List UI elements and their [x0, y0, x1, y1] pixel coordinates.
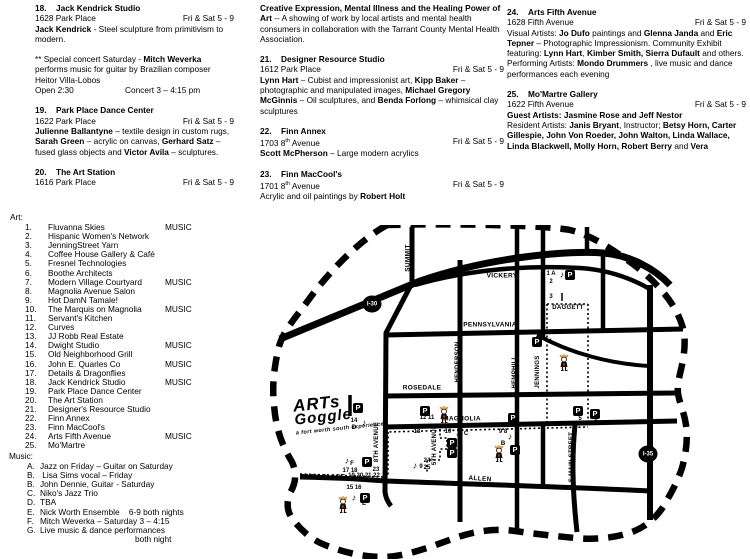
venue-address: 1703 8th Avenue — [260, 136, 320, 148]
street-label-vickery: VICKERY — [487, 273, 518, 280]
text-segment: Robert Holt — [360, 191, 405, 201]
street-label-summit: SUMMIT — [405, 244, 412, 271]
concert-times-row: Open 2:30Concert 3 – 4:15 pm — [35, 85, 234, 95]
venue-number: 20. — [35, 167, 56, 177]
venue-address: 1701 8th Avenue — [260, 179, 320, 191]
venue-marker: 7 — [514, 428, 517, 434]
parking-icon: P — [565, 270, 575, 280]
venue-marker: 19 20 21 22 — [348, 473, 380, 479]
parking-icon: P — [510, 445, 520, 455]
music-note-icon: ♪ — [352, 494, 357, 503]
paragraph: Creative Expression, Mental Illness and … — [260, 3, 504, 44]
text-segment: Gerhard Satz — [162, 136, 214, 146]
venue-marker: 2 — [549, 279, 552, 285]
venue-address: 1628 Fifth Avenue — [507, 17, 574, 27]
text-segment: Avenue — [290, 138, 320, 148]
music-item-letter: G. — [27, 526, 40, 535]
venue-marker: 15 16 — [346, 485, 361, 491]
spacer — [260, 159, 504, 169]
text-segment: Kipp Baker — [415, 75, 459, 85]
text-segment: 1628 Park Place — [35, 13, 96, 23]
parking-icon: P — [362, 457, 372, 467]
venue-hours: Fri & Sat 5 - 9 — [183, 177, 234, 187]
music-note-icon: ♪ — [456, 429, 461, 438]
venue-address-row: 1616 Park PlaceFri & Sat 5 - 9 — [35, 177, 234, 187]
venue-hours: Fri & Sat 5 - 9 — [695, 99, 746, 109]
parking-icon: P — [590, 409, 600, 419]
art-item-music-tag: MUSIC — [165, 278, 192, 287]
music-legend-items: A.Jazz on Friday – Guitar on SaturdayB. … — [9, 462, 265, 535]
spacer — [260, 116, 504, 126]
highway-shield-i-30: I-30 — [363, 296, 382, 313]
music-note-icon: ♪ — [560, 271, 565, 280]
listing-column-3: 24.Arts Fifth Avenue1628 Fifth AvenueFri… — [507, 7, 746, 151]
venue-name: Arts Fifth Avenue — [528, 7, 597, 17]
text-segment: Avenue — [290, 181, 320, 191]
venue-address-row: 1628 Park PlaceFri & Sat 5 - 9 — [35, 13, 234, 23]
parking-icon: P — [508, 413, 518, 423]
art-item-music-tag: MUSIC — [165, 378, 192, 387]
text-segment: Kimber Smith, Sierra Dufault — [587, 48, 700, 58]
venue-hours: Fri & Sat 5 - 9 — [183, 13, 234, 23]
venue-number: 23. — [260, 169, 281, 179]
text-segment: – Large modern acrylics — [328, 148, 419, 158]
parking-icon: P — [447, 448, 457, 458]
venue-hours: Fri & Sat 5 - 9 — [453, 179, 504, 191]
venue-description: Lynn Hart – Cubist and impressionist art… — [260, 75, 504, 116]
text-segment: Jo Dufo — [559, 28, 590, 38]
venue-marker: C — [464, 431, 468, 437]
venue-name: Mo'Martre Gallery — [528, 89, 598, 99]
venue-number: 21. — [260, 54, 281, 64]
text-segment: 1622 Park Place — [35, 116, 96, 126]
text-segment: Glenna Janda — [644, 28, 698, 38]
music-legend: Music: A.Jazz on Friday – Guitar on Satu… — [9, 452, 265, 544]
parking-icon: P — [532, 337, 542, 347]
music-note-icon: ♪ — [413, 462, 418, 471]
text-segment: – sculptures. — [169, 147, 218, 157]
text-segment: Mondo Drummers — [577, 58, 648, 68]
text-segment: Julienne Ballantyne — [35, 126, 113, 136]
street-label-park-place: PARK PLACE — [301, 474, 346, 481]
street-label-henderson: HENDERSON — [455, 341, 461, 382]
venue-title: 24.Arts Fifth Avenue — [507, 7, 746, 17]
art-item-music-tag: MUSIC — [165, 432, 192, 441]
venue-address: 1622 Park Place — [35, 116, 96, 126]
parking-icon: P — [573, 406, 583, 416]
venue-description: Acrylic and oil paintings by Robert Holt — [260, 191, 504, 201]
venue-marker: 4 — [548, 339, 551, 345]
text-segment: ** Special concert Saturday - — [35, 54, 143, 64]
venue-title: 25.Mo'Martre Gallery — [507, 89, 746, 99]
street-label-jennings: JENNINGS — [535, 355, 541, 388]
text-segment: 1628 Fifth Avenue — [507, 17, 574, 27]
art-item-music-tag: MUSIC — [165, 341, 192, 350]
event-map: SUMMITVICKERYPENNSYLVANIAHENDERSONROSEDA… — [270, 225, 750, 559]
venue-address-row: 1622 Park PlaceFri & Sat 5 - 9 — [35, 116, 234, 126]
venue-title: 20.The Art Station — [35, 167, 234, 177]
text-segment: Lynn Hart — [544, 48, 582, 58]
street-label-5th-avenue: 5TH AVENUE — [432, 425, 438, 465]
text-segment: Jack Kendrick — [35, 24, 91, 34]
venue-number: 18. — [35, 3, 56, 13]
venue-title: 19.Park Place Dance Center — [35, 105, 234, 115]
music-note-icon: ♪ — [345, 457, 350, 466]
text-segment: Vera — [691, 141, 709, 151]
street-label-s-main-street: S MAIN STREET — [569, 432, 575, 482]
text-segment: Acrylic and oil paintings by — [260, 191, 360, 201]
text-segment: 1616 Park Place — [35, 177, 96, 187]
venue-marker: 23 — [373, 467, 380, 473]
venue-marker: 10 — [445, 429, 452, 435]
music-legend-tail: both night — [135, 535, 265, 544]
street-label-hemphill: HEMPHILL — [512, 355, 518, 388]
venue-address-row: 1628 Fifth AvenueFri & Sat 5 - 9 — [507, 17, 746, 27]
venue-name: Designer Resource Studio — [281, 54, 385, 64]
art-list-item: 25.Mo'Martre — [10, 441, 266, 450]
venue-description: Julienne Ballantyne – textile design in … — [35, 126, 234, 157]
text-segment: 1703 8 — [260, 138, 285, 148]
spacer — [35, 95, 234, 105]
parking-icon: P — [360, 493, 370, 503]
music-note-icon: ♪ — [508, 433, 513, 442]
text-segment: Victor Avila — [124, 147, 169, 157]
venue-name: Jack Kendrick Studio — [56, 3, 140, 13]
street-label-daggett: DAGGETT — [552, 305, 583, 311]
text-segment: Mitch Weverka — [143, 54, 201, 64]
text-segment: Benda Forlong — [378, 95, 437, 105]
paragraph: ** Special concert Saturday - Mitch Weve… — [35, 54, 234, 85]
venue-address: 1622 Fifth Avenue — [507, 99, 574, 109]
venue-hours: Fri & Sat 5 - 9 — [453, 136, 504, 148]
text-segment: -- A showing of work by local artists an… — [260, 13, 500, 44]
text-segment: – textile design in custom rugs, — [113, 126, 229, 136]
text-segment: – Cubist and impressionist art, — [298, 75, 414, 85]
text-segment: Janis Bryant — [569, 120, 619, 130]
venue-marker: 1 A — [546, 271, 555, 277]
text-segment: and — [698, 28, 716, 38]
venue-description: Visual Artists: Jo Dufo paintings and Gl… — [507, 28, 746, 79]
venue-hours: Fri & Sat 5 - 9 — [695, 17, 746, 27]
venue-number: 25. — [507, 89, 528, 99]
spacer — [507, 79, 746, 89]
venue-hours: Fri & Sat 5 - 9 — [183, 116, 234, 126]
street-label-allen: ALLEN — [468, 475, 492, 484]
parking-icon: P — [420, 406, 430, 416]
venue-address-row: 1612 Park PlaceFri & Sat 5 - 9 — [260, 64, 504, 74]
parking-icon: P — [447, 438, 457, 448]
venue-marker: F — [350, 461, 354, 467]
venue-name: Park Place Dance Center — [56, 105, 154, 115]
text-segment: , Instructor; — [619, 120, 663, 130]
text-segment: Lynn Hart — [260, 75, 298, 85]
text-segment: 1701 8 — [260, 181, 285, 191]
text-segment: Scott McPherson — [260, 148, 328, 158]
venue-marker: 9 — [419, 464, 422, 470]
concert-time: Concert 3 – 4:15 pm — [125, 85, 200, 95]
venue-marker: 6 — [594, 419, 597, 425]
music-legend-title: Music: — [9, 452, 265, 461]
venue-description: Jack Kendrick - Steel sculpture from pri… — [35, 24, 234, 45]
venue-address-row: 1703 8th AvenueFri & Sat 5 - 9 — [260, 136, 504, 148]
venue-name: Finn MacCool's — [281, 169, 342, 179]
venue-title: 21.Designer Resource Studio — [260, 54, 504, 64]
text-segment: – acrylic on canvas, — [84, 136, 161, 146]
listing-column-1: 18.Jack Kendrick Studio1628 Park PlaceFr… — [35, 3, 234, 187]
street-label-pennsylvania: PENNSYLVANIA — [463, 322, 517, 329]
art-item-label: Mo'Martre — [48, 440, 85, 450]
venue-marker: 5 — [578, 416, 581, 422]
venue-description: Guest Artists: Jasmine Rose and Jeff Nes… — [507, 110, 746, 151]
spacer — [35, 44, 234, 54]
venue-hours: Fri & Sat 5 - 9 — [453, 64, 504, 74]
art-item-music-tag: MUSIC — [165, 305, 192, 314]
text-segment: and — [672, 141, 690, 151]
highway-shield-i-35: I-35 — [639, 446, 658, 463]
venue-address: 1616 Park Place — [35, 177, 96, 187]
venue-title: 18.Jack Kendrick Studio — [35, 3, 234, 13]
flyer-page: 18.Jack Kendrick Studio1628 Park PlaceFr… — [0, 0, 750, 559]
venue-address: 1628 Park Place — [35, 13, 96, 23]
street-label-rosedale: ROSEDALE — [403, 385, 442, 392]
art-item-number: 25. — [25, 441, 48, 450]
text-segment: 1612 Park Place — [260, 64, 321, 74]
venue-description: Scott McPherson – Large modern acrylics — [260, 148, 504, 158]
text-segment: – Oil sculptures, and — [297, 95, 377, 105]
venue-name: Finn Annex — [281, 126, 326, 136]
text-segment: 1622 Fifth Avenue — [507, 99, 574, 109]
text-segment: Visual Artists: — [507, 28, 559, 38]
open-time: Open 2:30 — [35, 85, 125, 95]
venue-marker: 9 8 — [499, 429, 507, 435]
venue-address-row: 1622 Fifth AvenueFri & Sat 5 - 9 — [507, 99, 746, 109]
venue-title: 23.Finn MacCool's — [260, 169, 504, 179]
venue-address: 1612 Park Place — [260, 64, 321, 74]
text-segment: paintings and — [590, 28, 644, 38]
art-legend: Art: 1.Fluvanna SkiesMUSIC2.Hispanic Wom… — [10, 213, 266, 450]
venue-address-row: 1701 8th AvenueFri & Sat 5 - 9 — [260, 179, 504, 191]
text-segment: Guest Artists: Jasmine Rose and Jeff Nes… — [507, 110, 682, 120]
text-segment: Resident Artists: — [507, 120, 569, 130]
text-segment: performs music for guitar by Brazilian c… — [35, 64, 211, 84]
art-legend-items: 1.Fluvanna SkiesMUSIC2.Hispanic Women's … — [10, 223, 266, 450]
venue-title: 22.Finn Annex — [260, 126, 504, 136]
text-segment: Sarah Green — [35, 136, 84, 146]
venue-marker: 3 — [549, 294, 552, 300]
venue-marker: 13 — [414, 429, 421, 435]
listing-column-2: Creative Expression, Mental Illness and … — [260, 3, 504, 201]
venue-marker: 25 — [424, 465, 431, 471]
spacer — [35, 157, 234, 167]
venue-number: 19. — [35, 105, 56, 115]
venue-number: 22. — [260, 126, 281, 136]
venue-marker: 24 — [424, 458, 431, 464]
art-item-music-tag: MUSIC — [165, 360, 192, 369]
art-item-music-tag: MUSIC — [165, 223, 192, 232]
art-legend-title: Art: — [10, 213, 266, 222]
venue-name: The Art Station — [56, 167, 115, 177]
venue-number: 24. — [507, 7, 528, 17]
spacer — [260, 44, 504, 54]
